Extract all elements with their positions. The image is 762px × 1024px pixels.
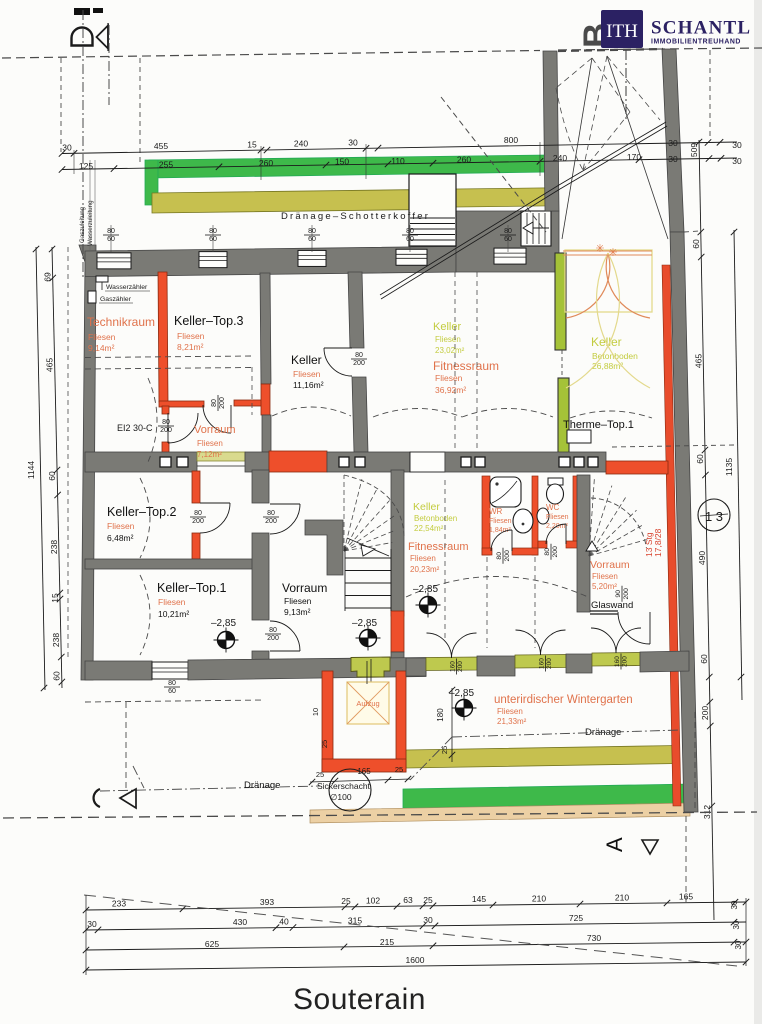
svg-text:30: 30 bbox=[668, 154, 678, 164]
svg-text:730: 730 bbox=[587, 933, 601, 943]
svg-text:Fitnessraum: Fitnessraum bbox=[408, 541, 469, 553]
svg-text:Fliesen: Fliesen bbox=[546, 514, 569, 521]
svg-text:WC: WC bbox=[546, 503, 560, 512]
svg-text:Gaszähler: Gaszähler bbox=[100, 296, 132, 303]
svg-text:Vorraum: Vorraum bbox=[194, 424, 236, 436]
svg-text:Fliesen: Fliesen bbox=[158, 597, 186, 607]
svg-text:625: 625 bbox=[205, 939, 219, 949]
svg-text:Keller: Keller bbox=[291, 353, 322, 367]
svg-text:465: 465 bbox=[45, 358, 55, 372]
svg-text:1135: 1135 bbox=[724, 458, 734, 477]
svg-text:Dränage: Dränage bbox=[244, 780, 280, 791]
svg-text:30: 30 bbox=[668, 138, 678, 148]
svg-text:–2,85: –2,85 bbox=[352, 618, 377, 629]
svg-text:10,21m²: 10,21m² bbox=[158, 609, 189, 619]
svg-text:Souterain: Souterain bbox=[293, 983, 426, 1016]
svg-text:455: 455 bbox=[154, 141, 168, 151]
svg-text:725: 725 bbox=[569, 913, 583, 923]
svg-text:30: 30 bbox=[62, 142, 72, 152]
svg-text:260: 260 bbox=[457, 155, 471, 165]
svg-text:Vorraum: Vorraum bbox=[590, 559, 630, 571]
svg-text:490: 490 bbox=[697, 551, 707, 565]
svg-text:30: 30 bbox=[87, 919, 97, 929]
svg-text:Therme–Top.1: Therme–Top.1 bbox=[563, 419, 634, 431]
svg-text:Fliesen: Fliesen bbox=[177, 331, 205, 341]
svg-text:80: 80 bbox=[496, 552, 503, 560]
svg-text:165: 165 bbox=[357, 767, 371, 776]
svg-text:240: 240 bbox=[553, 153, 567, 163]
svg-text:30: 30 bbox=[732, 920, 741, 929]
svg-text:800: 800 bbox=[504, 135, 518, 145]
svg-text:30: 30 bbox=[734, 940, 743, 949]
svg-text:160: 160 bbox=[539, 658, 546, 669]
svg-text:210: 210 bbox=[532, 894, 546, 904]
svg-text:30: 30 bbox=[348, 138, 358, 148]
svg-text:238: 238 bbox=[51, 633, 61, 647]
svg-text:20,23m²: 20,23m² bbox=[410, 565, 440, 574]
svg-text:15: 15 bbox=[247, 139, 257, 149]
svg-text:125: 125 bbox=[79, 161, 93, 171]
svg-text:80: 80 bbox=[267, 510, 275, 517]
svg-text:Fliesen: Fliesen bbox=[410, 554, 436, 563]
svg-text:165: 165 bbox=[679, 892, 693, 902]
svg-text:255: 255 bbox=[159, 160, 173, 170]
svg-text:EI2 30-C: EI2 30-C bbox=[117, 423, 153, 433]
svg-text:80: 80 bbox=[544, 548, 551, 556]
svg-text:200: 200 bbox=[219, 397, 226, 409]
svg-text:Dränage–Schotterkoffer: Dränage–Schotterkoffer bbox=[281, 211, 430, 222]
svg-text:Fliesen: Fliesen bbox=[197, 439, 223, 448]
svg-text:200: 200 bbox=[622, 656, 629, 667]
svg-text:60: 60 bbox=[47, 471, 57, 481]
svg-text:15: 15 bbox=[50, 593, 60, 603]
svg-text:SCHANTL: SCHANTL bbox=[651, 18, 751, 39]
svg-text:30: 30 bbox=[732, 140, 742, 150]
svg-text:–2,85: –2,85 bbox=[211, 618, 236, 629]
svg-text:Keller–Top.2: Keller–Top.2 bbox=[107, 505, 177, 519]
svg-text:200: 200 bbox=[457, 661, 464, 672]
svg-text:Keller–Top.1: Keller–Top.1 bbox=[157, 581, 227, 595]
svg-text:5,20m²: 5,20m² bbox=[592, 582, 617, 591]
svg-text:8,21m²: 8,21m² bbox=[177, 342, 204, 352]
svg-text:30: 30 bbox=[732, 156, 742, 166]
svg-text:60: 60 bbox=[695, 454, 705, 464]
svg-text:Glaswand: Glaswand bbox=[591, 600, 633, 611]
svg-text:40: 40 bbox=[279, 917, 289, 927]
svg-text:ITH: ITH bbox=[606, 21, 638, 42]
svg-text:80: 80 bbox=[355, 352, 363, 359]
svg-text:–2,85: –2,85 bbox=[449, 688, 474, 699]
svg-text:Fliesen: Fliesen bbox=[293, 369, 321, 379]
svg-text:200: 200 bbox=[160, 427, 172, 434]
svg-text:∅100: ∅100 bbox=[330, 792, 352, 802]
svg-text:200: 200 bbox=[546, 658, 553, 669]
svg-text:200: 200 bbox=[552, 546, 559, 558]
svg-text:60: 60 bbox=[406, 236, 414, 243]
svg-text:200: 200 bbox=[353, 360, 365, 367]
svg-text:80: 80 bbox=[168, 680, 176, 687]
svg-text:69: 69 bbox=[43, 272, 53, 282]
svg-text:60: 60 bbox=[209, 236, 217, 243]
svg-text:200: 200 bbox=[267, 635, 279, 642]
svg-text:80: 80 bbox=[308, 228, 316, 235]
svg-text:Aufzug: Aufzug bbox=[356, 699, 379, 708]
svg-text:25: 25 bbox=[395, 765, 403, 774]
svg-text:30: 30 bbox=[423, 915, 433, 925]
svg-text:Fliesen: Fliesen bbox=[107, 521, 135, 531]
svg-text:90: 90 bbox=[615, 590, 622, 598]
svg-text:Fitnessraum: Fitnessraum bbox=[433, 359, 499, 373]
svg-text:unterirdischer Wintergarten: unterirdischer Wintergarten bbox=[494, 694, 633, 706]
svg-text:393: 393 bbox=[260, 897, 274, 907]
svg-text:238: 238 bbox=[49, 540, 59, 554]
svg-text:11,16m²: 11,16m² bbox=[293, 380, 324, 390]
svg-text:Keller: Keller bbox=[433, 321, 461, 333]
svg-text:Sickerschacht: Sickerschacht bbox=[317, 781, 371, 791]
svg-text:60: 60 bbox=[168, 688, 176, 695]
svg-text:Fliesen: Fliesen bbox=[592, 572, 618, 581]
svg-text:7,12m²: 7,12m² bbox=[197, 450, 222, 459]
svg-text:180: 180 bbox=[436, 708, 445, 722]
svg-text:6,48m²: 6,48m² bbox=[107, 533, 134, 543]
svg-text:200: 200 bbox=[700, 706, 710, 720]
svg-text:25: 25 bbox=[320, 740, 329, 748]
svg-text:Fliesen: Fliesen bbox=[489, 518, 512, 525]
svg-text:60: 60 bbox=[107, 236, 115, 243]
svg-text:63: 63 bbox=[403, 895, 413, 905]
svg-text:A: A bbox=[602, 837, 627, 852]
svg-text:Vorraum: Vorraum bbox=[282, 581, 327, 595]
svg-text:60: 60 bbox=[52, 671, 62, 681]
svg-text:Fliesen: Fliesen bbox=[497, 707, 523, 716]
svg-text:Wasserzuleitung: Wasserzuleitung bbox=[87, 200, 94, 246]
svg-text:Keller–Top.3: Keller–Top.3 bbox=[174, 314, 244, 328]
svg-text:80: 80 bbox=[211, 399, 218, 407]
svg-text:36,92m²: 36,92m² bbox=[435, 385, 466, 395]
svg-text:Technikraum: Technikraum bbox=[87, 315, 155, 329]
svg-text:30: 30 bbox=[730, 900, 739, 909]
svg-text:80: 80 bbox=[162, 419, 170, 426]
svg-text:200: 200 bbox=[192, 518, 204, 525]
svg-text:210: 210 bbox=[615, 893, 629, 903]
svg-text:240: 240 bbox=[294, 138, 308, 148]
svg-text:✳: ✳ bbox=[608, 247, 617, 259]
svg-text:21,33m²: 21,33m² bbox=[497, 717, 527, 726]
svg-text:60: 60 bbox=[691, 239, 701, 249]
svg-text:Fliesen: Fliesen bbox=[88, 332, 116, 342]
svg-text:102: 102 bbox=[366, 896, 380, 906]
svg-text:200: 200 bbox=[265, 518, 277, 525]
svg-text:1 3: 1 3 bbox=[705, 509, 723, 524]
svg-text:10: 10 bbox=[311, 708, 320, 716]
svg-text:Betonboden: Betonboden bbox=[414, 514, 457, 523]
svg-text:430: 430 bbox=[233, 917, 247, 927]
svg-text:80: 80 bbox=[107, 228, 115, 235]
svg-text:–2,85: –2,85 bbox=[413, 584, 438, 595]
svg-text:110: 110 bbox=[391, 156, 405, 166]
svg-text:60: 60 bbox=[504, 236, 512, 243]
svg-text:145: 145 bbox=[472, 894, 486, 904]
svg-text:1600: 1600 bbox=[406, 955, 425, 965]
svg-text:465: 465 bbox=[693, 354, 703, 368]
svg-text:Keller: Keller bbox=[413, 501, 440, 513]
svg-text:160: 160 bbox=[614, 656, 621, 667]
svg-text:25: 25 bbox=[316, 770, 324, 779]
svg-text:80: 80 bbox=[194, 510, 202, 517]
svg-text:17,8/28: 17,8/28 bbox=[653, 528, 663, 557]
svg-text:25: 25 bbox=[423, 895, 433, 905]
svg-text:Fliesen: Fliesen bbox=[284, 596, 312, 606]
svg-text:80: 80 bbox=[406, 228, 414, 235]
svg-text:9,14m²: 9,14m² bbox=[88, 343, 115, 353]
svg-text:200: 200 bbox=[623, 588, 630, 600]
svg-text:80: 80 bbox=[209, 228, 217, 235]
svg-text:9,13m²: 9,13m² bbox=[284, 607, 311, 617]
svg-text:IMMOBILIENTREUHAND: IMMOBILIENTREUHAND bbox=[651, 39, 741, 46]
svg-text:60: 60 bbox=[308, 236, 316, 243]
svg-text:22,54m²: 22,54m² bbox=[414, 524, 444, 533]
svg-text:233: 233 bbox=[112, 899, 126, 909]
svg-text:Wasserzähler: Wasserzähler bbox=[106, 284, 148, 291]
svg-text:Gaszuleitung: Gaszuleitung bbox=[79, 206, 86, 243]
svg-text:150: 150 bbox=[335, 157, 349, 167]
svg-text:200: 200 bbox=[504, 550, 511, 562]
svg-text:✳: ✳ bbox=[595, 243, 604, 255]
svg-text:WR: WR bbox=[489, 507, 503, 516]
svg-text:23,02m²: 23,02m² bbox=[435, 346, 465, 355]
svg-text:80: 80 bbox=[269, 627, 277, 634]
svg-text:Fliesen: Fliesen bbox=[435, 373, 463, 383]
svg-text:25: 25 bbox=[341, 896, 351, 906]
svg-text:25: 25 bbox=[440, 746, 449, 754]
svg-text:80: 80 bbox=[504, 228, 512, 235]
svg-text:160: 160 bbox=[450, 661, 457, 672]
svg-text:215: 215 bbox=[380, 937, 394, 947]
svg-text:Fliesen: Fliesen bbox=[435, 335, 461, 344]
svg-text:60: 60 bbox=[699, 654, 709, 664]
svg-text:509: 509 bbox=[689, 143, 699, 157]
svg-text:1144: 1144 bbox=[26, 461, 36, 480]
